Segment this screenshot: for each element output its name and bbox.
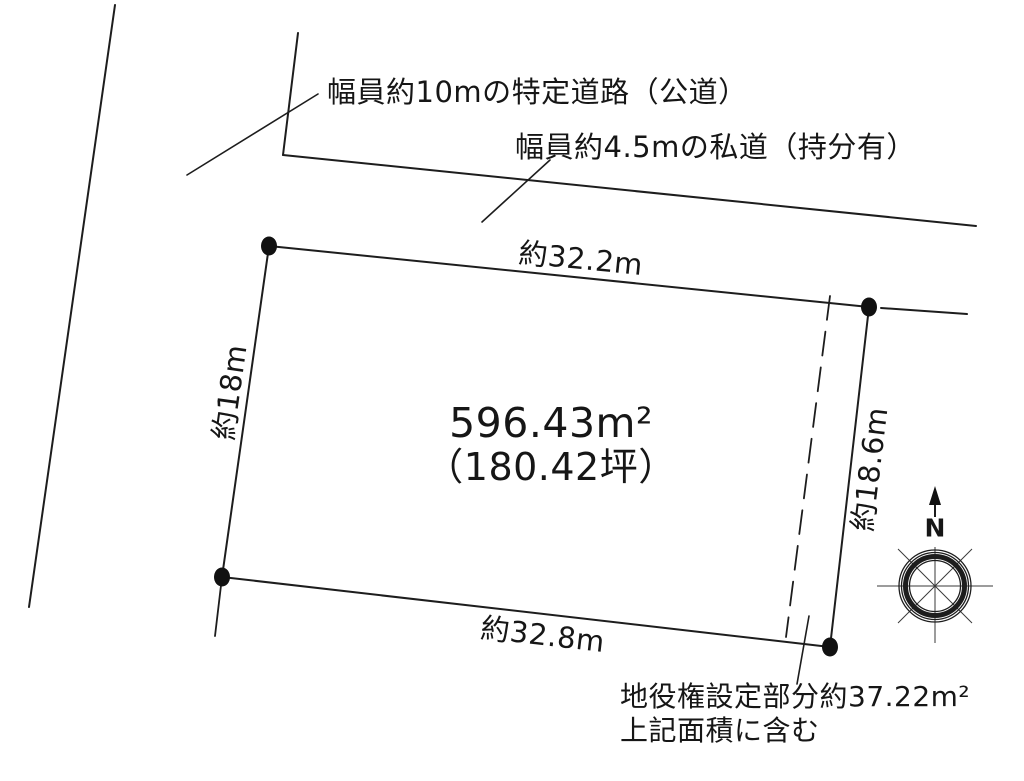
corner-dot-bottom-right [822,638,838,657]
easement-note-line1: 地役権設定部分約37.22m² [620,680,970,714]
easement-leader-line [797,616,809,684]
public-road-west-line [29,5,115,607]
parcel-top-edge-extension [881,308,967,314]
corner-dot-bottom-left [214,568,230,587]
public-road-east-line [283,33,298,155]
public-road-leader-line [187,94,318,175]
easement-dashed-line [786,296,830,637]
compass-north-label: N [925,514,946,543]
compass-icon [877,486,993,643]
parcel-area-sqm: 596.43m² [425,401,676,445]
site-plan-drawing [0,0,1024,781]
corner-dot-top-right [861,298,877,317]
private-road-leader-line [482,160,550,222]
parcel-area-block: 596.43m² （180.42坪） [425,401,676,489]
parcel-area-tsubo: （180.42坪） [425,445,676,489]
public-road-label: 幅員約10mの特定道路（公道） [327,69,748,111]
north-arrow-head [929,486,941,505]
easement-note: 地役権設定部分約37.22m² 上記面積に含む [620,680,970,748]
land-plot-diagram: 幅員約10mの特定道路（公道） 幅員約4.5mの私道（持分有） 約32.2m 約… [0,0,1024,781]
private-road-label: 幅員約4.5mの私道（持分有） [515,124,916,166]
easement-note-line2: 上記面積に含む [620,714,970,748]
corner-dot-top-left [261,237,277,256]
